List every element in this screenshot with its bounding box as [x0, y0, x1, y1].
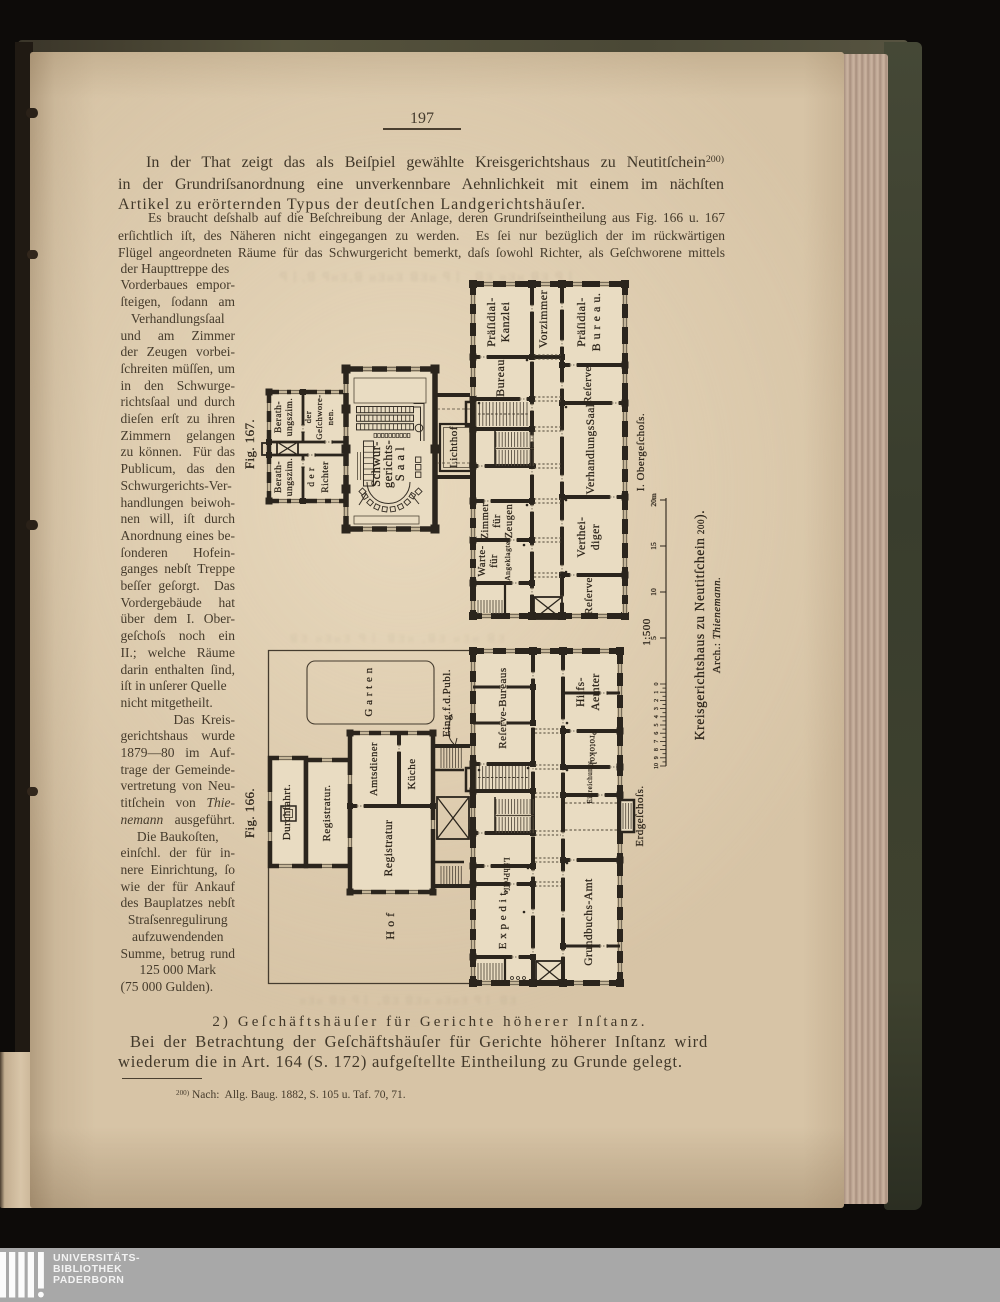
svg-text:Einreichungs: Einreichungs: [586, 761, 594, 804]
svg-text:2: 2: [654, 699, 660, 702]
svg-text:Registratur: Registratur: [383, 820, 395, 877]
svg-text:für: für: [489, 554, 500, 568]
svg-text:Kanzlei: Kanzlei: [498, 301, 512, 342]
svg-text:Küche: Küche: [406, 758, 418, 789]
svg-text:Eing.f.d.Publ.: Eing.f.d.Publ.: [441, 669, 453, 737]
svg-text:ungszim.: ungszim.: [285, 398, 295, 437]
svg-text:Reſerve: Reſerve: [582, 366, 594, 404]
svg-text:Amtsdiener: Amtsdiener: [369, 742, 380, 796]
svg-text:6: 6: [654, 732, 660, 735]
svg-text:Verthei-: Verthei-: [576, 516, 588, 557]
svg-text:Zimmer: Zimmer: [480, 503, 491, 540]
svg-text:B u r e a u.: B u r e a u.: [589, 293, 603, 352]
svg-text:Präſidial-: Präſidial-: [574, 297, 588, 347]
svg-text:8: 8: [654, 748, 660, 751]
svg-text:Zeugen: Zeugen: [504, 504, 515, 539]
svg-text:diger: diger: [590, 524, 602, 550]
svg-text:10: 10: [649, 588, 658, 596]
svg-text:der: der: [303, 411, 313, 423]
svg-text:Fig. 166.: Fig. 166.: [242, 788, 257, 838]
svg-text:Geſchwore-: Geſchwore-: [314, 394, 324, 439]
svg-text:Aemter: Aemter: [590, 673, 602, 710]
svg-text:Warte-: Warte-: [477, 545, 488, 576]
svg-text:3: 3: [654, 707, 660, 710]
svg-text:Erdgeſchoſs.: Erdgeſchoſs.: [634, 785, 646, 846]
svg-text:Berath-: Berath-: [274, 461, 284, 493]
svg-text:Vorzimmer: Vorzimmer: [536, 290, 550, 348]
svg-text:Kreisgerichtshaus zu Neutitſch: Kreisgerichtshaus zu Neutitſchein 200).: [692, 510, 707, 740]
svg-text:d e r: d e r: [307, 467, 317, 487]
svg-text:Fig. 167.: Fig. 167.: [242, 419, 257, 469]
svg-text:Durchfahrt.: Durchfahrt.: [281, 784, 293, 841]
svg-text:Angeklagte: Angeklagte: [503, 541, 512, 581]
svg-text:Reſerve: Reſerve: [583, 577, 595, 615]
svg-text:I. Obergeſchoſs.: I. Obergeſchoſs.: [635, 413, 647, 491]
svg-text:H o f: H o f: [383, 912, 397, 939]
svg-text:Bureau: Bureau: [493, 359, 507, 397]
svg-text:für: für: [492, 514, 503, 528]
svg-text:5: 5: [654, 724, 660, 727]
svg-text:E x p e d i t.: E x p e d i t.: [497, 889, 509, 949]
svg-text:0: 0: [654, 683, 660, 686]
svg-text:ungszim.: ungszim.: [285, 458, 295, 497]
svg-text:7: 7: [654, 740, 660, 743]
svg-text:Richter: Richter: [321, 461, 331, 493]
svg-text:VerhandlungsSaal: VerhandlungsSaal: [585, 403, 597, 494]
svg-text:15: 15: [649, 542, 658, 550]
svg-text:10: 10: [654, 763, 660, 769]
svg-text:S a a l: S a a l: [393, 447, 407, 481]
svg-text:Berath-: Berath-: [274, 401, 284, 433]
svg-text:Arch.: Thienemann.: Arch.: Thienemann.: [711, 577, 723, 674]
svg-text:nen.: nen.: [325, 409, 335, 425]
svg-text:Hilfs-: Hilfs-: [575, 677, 587, 707]
svg-text:9: 9: [654, 756, 660, 759]
svg-text:G a r t e n: G a r t e n: [363, 667, 375, 716]
svg-text:Reſerve-Bureaus: Reſerve-Bureaus: [497, 667, 509, 748]
svg-text:Präſidial-: Präſidial-: [484, 297, 498, 347]
svg-text:4: 4: [654, 715, 660, 718]
svg-text:Lichthof: Lichthof: [448, 426, 460, 468]
svg-text:1:500: 1:500: [641, 618, 653, 646]
svg-text:1: 1: [654, 691, 660, 694]
svg-text:20m: 20m: [649, 493, 658, 507]
svg-text:Registratur.: Registratur.: [321, 784, 333, 841]
svg-text:Grundbuchs-Amt: Grundbuchs-Amt: [583, 878, 595, 966]
